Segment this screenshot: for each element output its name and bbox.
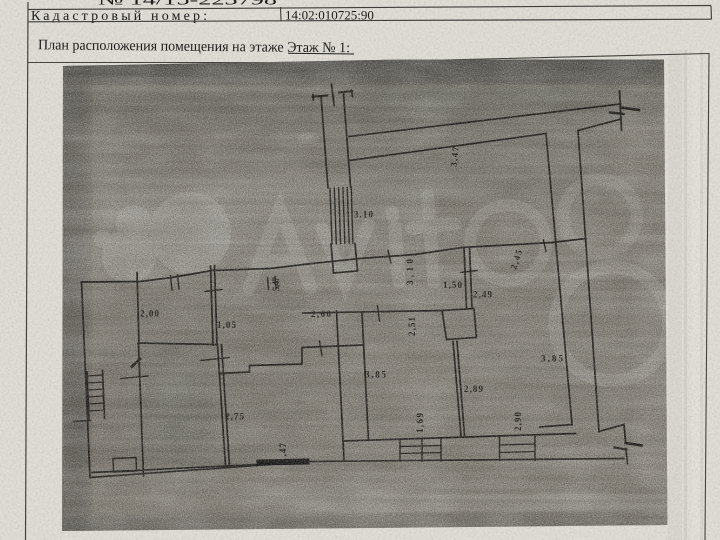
svg-text:№ 14/15-223798: № 14/15-223798 — [98, 0, 277, 8]
